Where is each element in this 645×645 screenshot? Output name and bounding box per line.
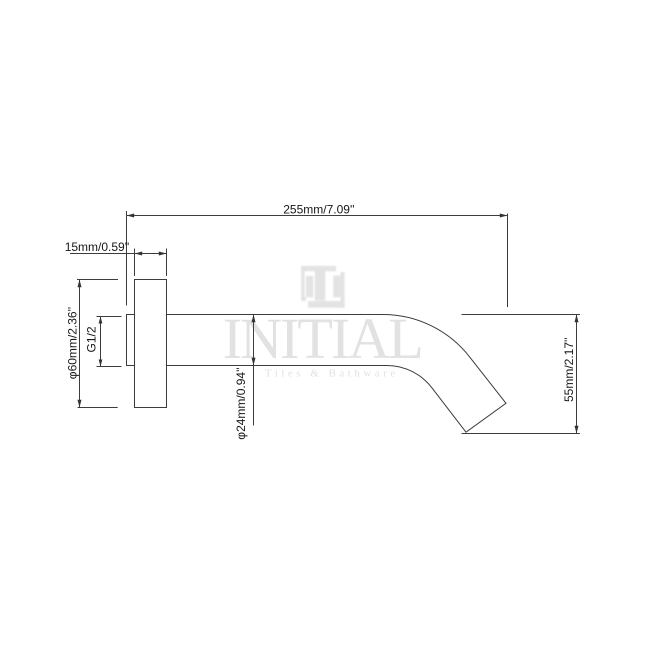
- svg-text:255mm/7.09'': 255mm/7.09'': [283, 203, 354, 217]
- svg-text:G1/2: G1/2: [84, 326, 98, 352]
- svg-text:φ24mm/0.94'': φ24mm/0.94'': [234, 367, 248, 439]
- svg-text:Tiles & Bathware: Tiles & Bathware: [265, 368, 399, 380]
- svg-text:55mm/2.17'': 55mm/2.17'': [562, 337, 576, 402]
- svg-text:15mm/0.59'': 15mm/0.59'': [65, 240, 130, 254]
- svg-text:φ60mm/2.36'': φ60mm/2.36'': [66, 307, 80, 379]
